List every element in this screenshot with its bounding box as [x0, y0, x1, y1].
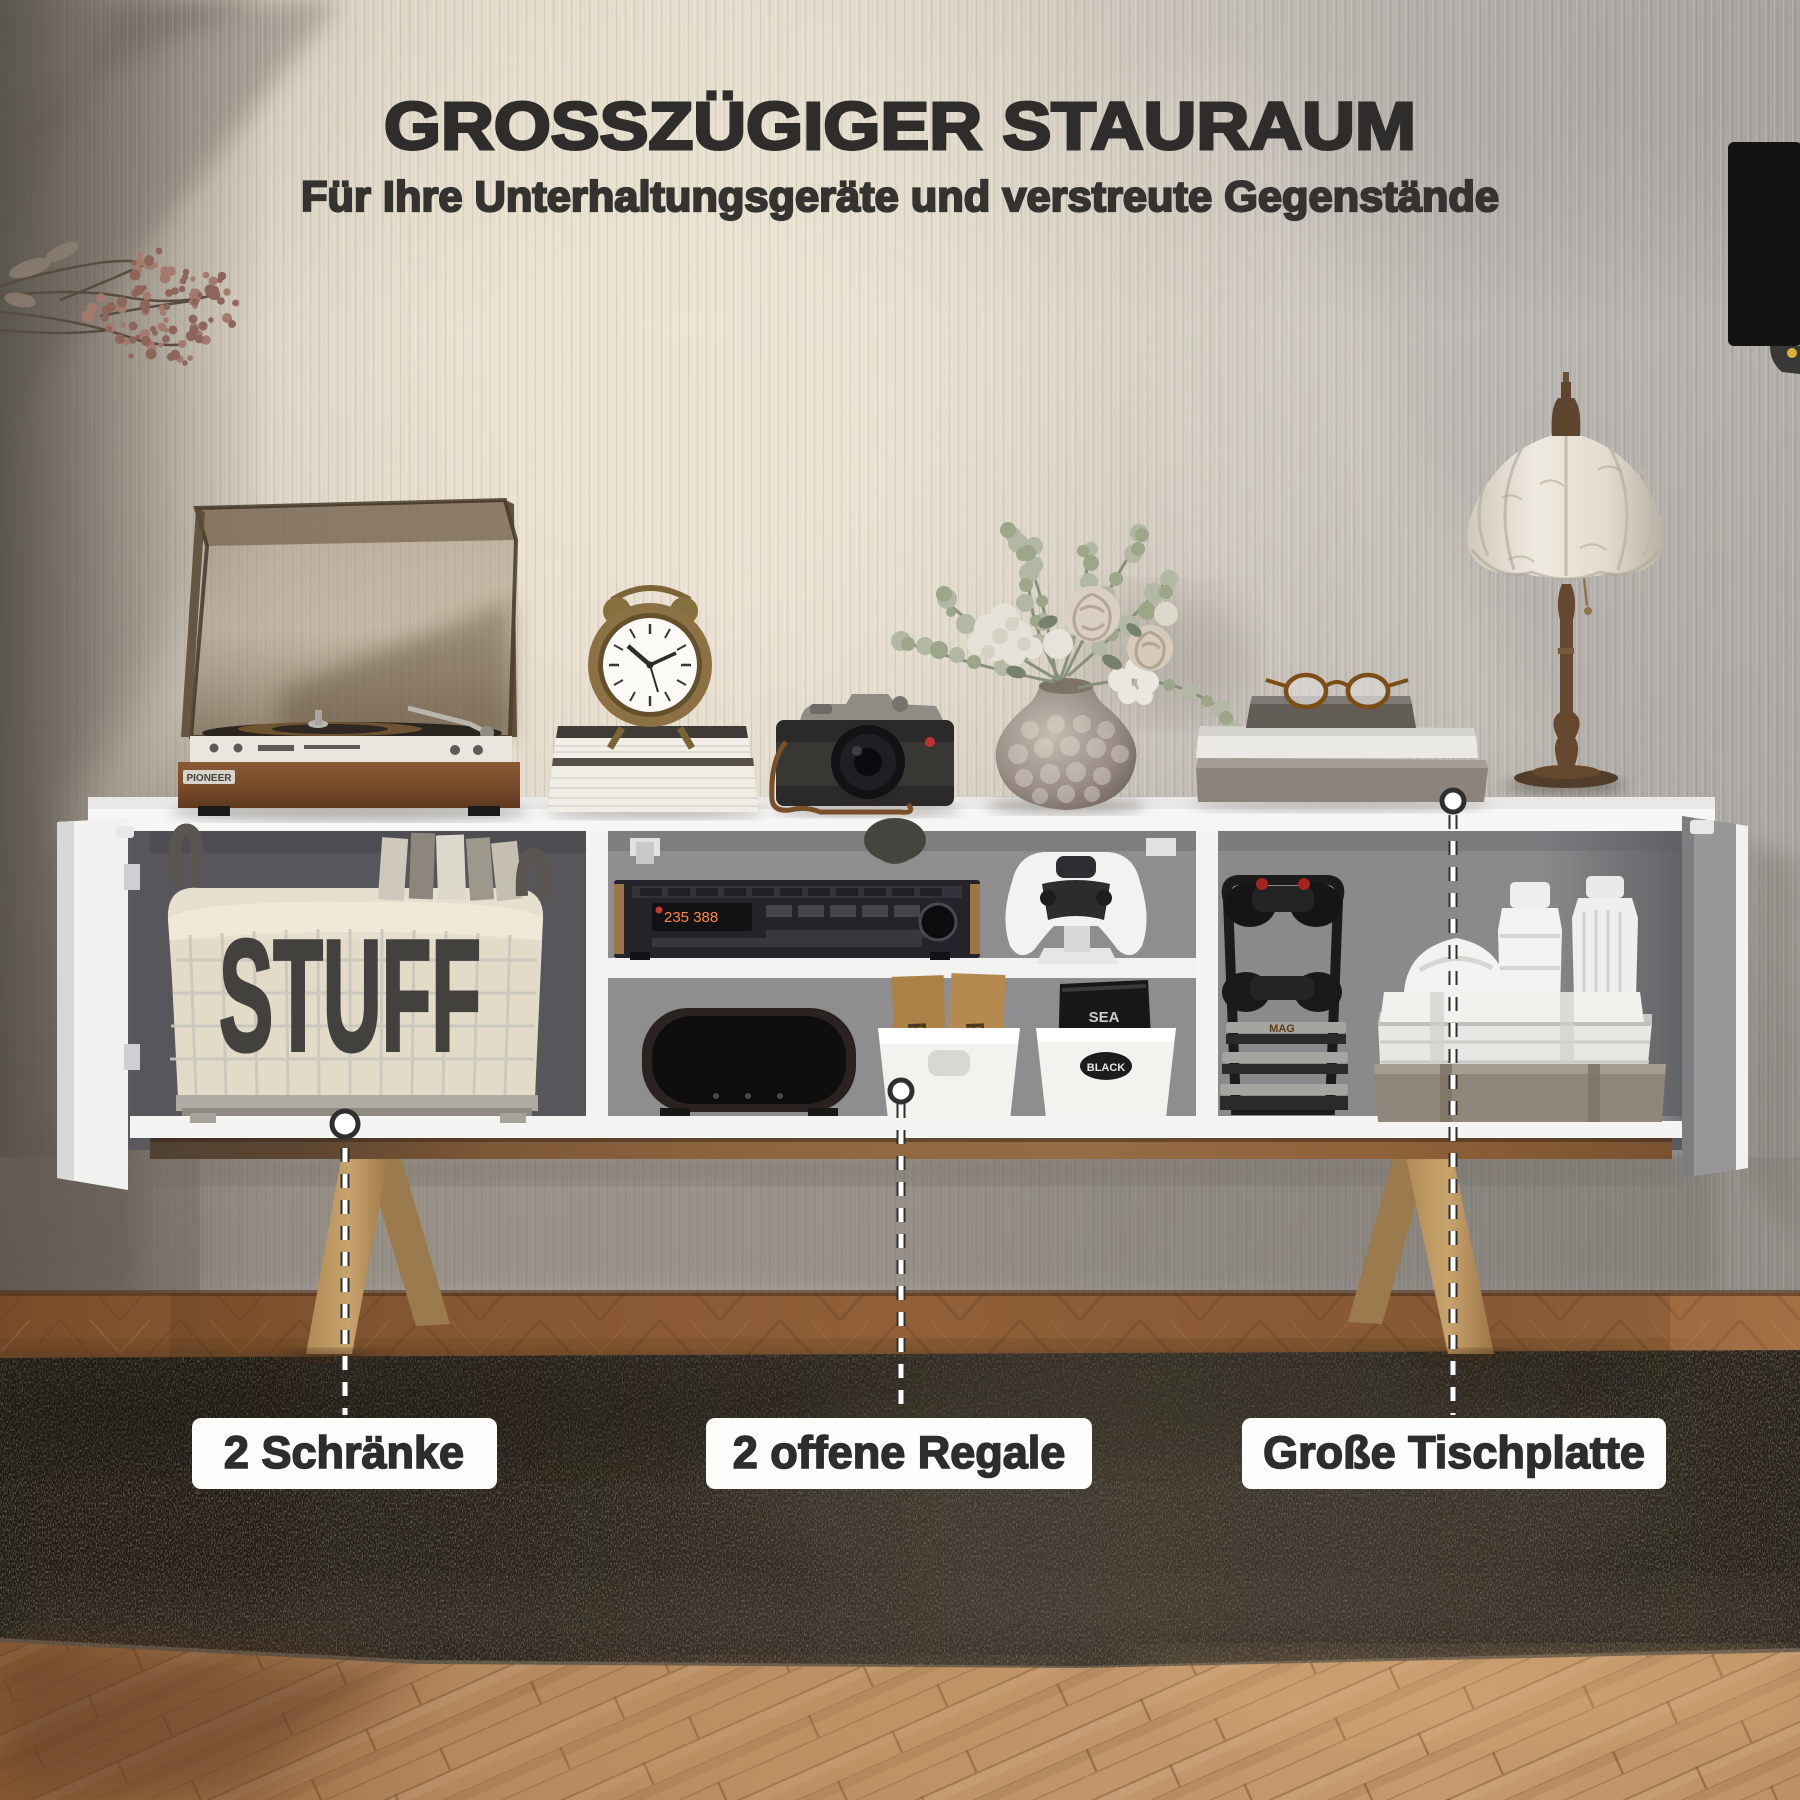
- svg-text:BLACK: BLACK: [1087, 1062, 1126, 1074]
- svg-text:2 Schränke: 2 Schränke: [224, 1427, 464, 1478]
- svg-text:STUFF: STUFF: [219, 908, 481, 1084]
- svg-text:GROSSZÜGIGER STAURAUM: GROSSZÜGIGER STAURAUM: [384, 89, 1416, 164]
- svg-text:Für Ihre Unterhaltungsgeräte u: Für Ihre Unterhaltungsgeräte und verstre…: [301, 173, 1499, 221]
- svg-text:PIONEER: PIONEER: [186, 773, 232, 784]
- svg-text:MAG: MAG: [1269, 1023, 1295, 1035]
- svg-text:2 offene Regale: 2 offene Regale: [733, 1427, 1066, 1478]
- svg-text:Große Tischplatte: Große Tischplatte: [1263, 1427, 1645, 1478]
- svg-text:SEA: SEA: [1089, 1009, 1120, 1026]
- svg-text:235 388: 235 388: [664, 909, 718, 926]
